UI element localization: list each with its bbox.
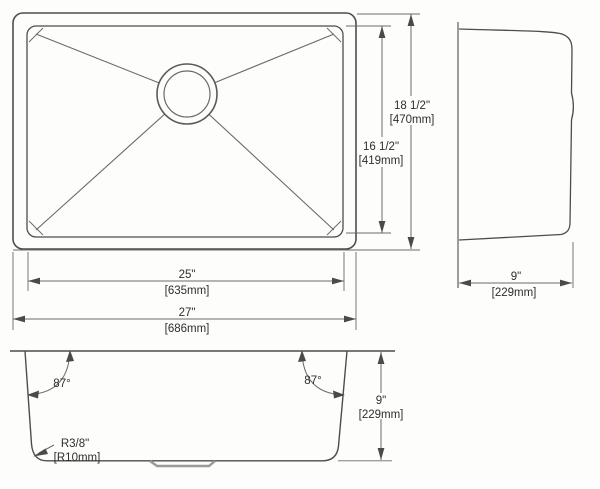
dim-bowl-depth-metric: [229mm] <box>359 409 404 421</box>
dim-outer-height-imperial: 18 1/2" <box>394 100 430 112</box>
corner-mark-top-right <box>327 28 341 42</box>
arrowhead-up-icon <box>378 352 385 364</box>
side-profile-outline <box>459 29 573 240</box>
arrowhead-left-icon <box>459 280 471 287</box>
dim-outer-width-imperial: 27" <box>179 307 196 319</box>
arrowhead-down-icon <box>378 448 385 460</box>
left-wall-angle-label: 87° <box>53 378 70 390</box>
arrowhead-left-icon <box>13 316 25 323</box>
dim-bowl-depth: 9" [229mm] <box>358 352 405 460</box>
technical-drawing-canvas: 16 1/2" [419mm] 18 1/2" [470mm] 25" [635… <box>0 0 600 489</box>
angle-arc <box>302 352 343 396</box>
arrowhead-left-icon <box>28 278 40 285</box>
corner-radius-metric: [R10mm] <box>54 452 101 464</box>
arrowhead-leader-icon <box>33 449 48 457</box>
dim-side-depth-imperial: 9" <box>511 271 521 283</box>
section-view: 87° 87° R3/8" [R10mm] 9" [229mm] <box>10 350 405 466</box>
bowl-corner-marks <box>29 28 341 235</box>
arrowhead-right-icon <box>560 280 572 287</box>
drain <box>157 64 217 124</box>
dim-inner-height-imperial: 16 1/2" <box>363 141 399 153</box>
sink-outer-rim <box>13 13 356 249</box>
dim-outer-width-metric: [686mm] <box>165 323 210 335</box>
dim-bowl-depth-imperial: 9" <box>376 395 386 407</box>
drain-recess <box>150 461 215 466</box>
dim-side-depth: 9" [229mm] <box>459 271 572 299</box>
corner-radius-imperial: R3/8" <box>61 438 89 450</box>
dim-inner-width: 25" [635mm] <box>28 252 344 297</box>
arrowhead-up-icon <box>408 14 415 26</box>
arrowhead-down-icon <box>408 237 415 249</box>
drain-outer-ring <box>157 64 217 124</box>
dim-inner-height-metric: [419mm] <box>359 155 404 167</box>
side-view: 9" [229mm] <box>458 22 573 299</box>
arrowhead-right-icon <box>344 316 356 323</box>
dim-outer-height-metric: [470mm] <box>390 114 435 126</box>
dim-side-depth-metric: [229mm] <box>492 287 537 299</box>
arrowhead-down-icon <box>379 221 386 233</box>
dim-outer-height: 18 1/2" [470mm] <box>13 14 435 250</box>
arrowhead-up-icon <box>66 350 74 362</box>
dim-inner-width-metric: [635mm] <box>165 285 210 297</box>
arrowhead-up-icon <box>298 350 306 362</box>
plan-view <box>13 13 356 249</box>
corner-mark-bottom-left <box>29 221 43 235</box>
dim-inner-width-imperial: 25" <box>179 269 196 281</box>
corner-mark-top-left <box>29 28 43 42</box>
angle-dim-right: 87° <box>298 350 345 399</box>
sink-bowl-edge <box>27 26 343 237</box>
sink-spec-drawing: 16 1/2" [419mm] 18 1/2" [470mm] 25" [635… <box>0 0 600 489</box>
arrowhead-up-icon <box>379 26 386 38</box>
right-wall-angle-label: 87° <box>304 375 321 387</box>
corner-mark-bottom-right <box>327 221 341 235</box>
arrowhead-right-icon <box>332 278 344 285</box>
dim-inner-height: 16 1/2" [419mm] <box>346 26 406 233</box>
angle-dim-left: 87° <box>27 350 74 399</box>
